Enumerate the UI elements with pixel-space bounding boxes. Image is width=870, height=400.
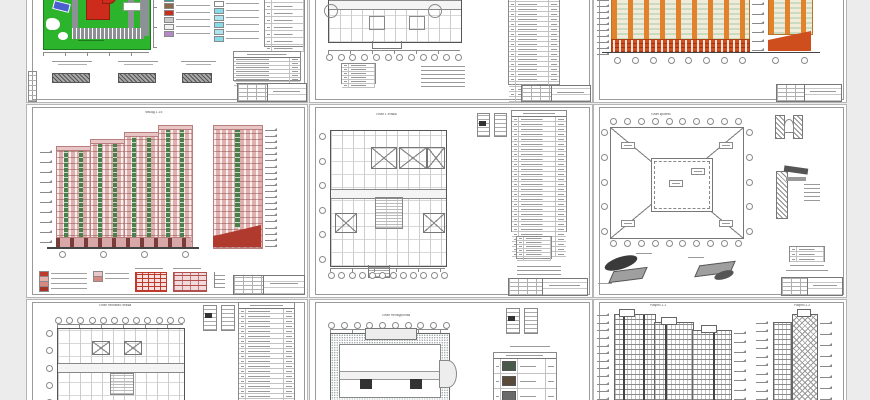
axis-bubbles-bottom <box>328 272 448 279</box>
elevation-mark <box>734 387 746 391</box>
cell-text <box>516 7 549 11</box>
unit-column <box>494 113 507 137</box>
section-tower-2 <box>654 322 694 400</box>
axis-bubble <box>735 118 742 125</box>
cell-value <box>549 72 559 76</box>
note-line <box>421 74 465 75</box>
sheet-floor-plan-main: План 1 этажа <box>309 104 593 298</box>
cell-value <box>284 344 294 348</box>
room-box <box>369 16 385 30</box>
cell-number <box>517 249 524 252</box>
elevation-mark <box>265 164 277 168</box>
cell-value <box>556 202 566 206</box>
sanitary-units-detail <box>477 113 507 137</box>
axis-bubble <box>77 317 84 324</box>
elevation-mark <box>265 145 277 149</box>
axis-bubble <box>420 54 427 61</box>
elevation-marks-right-2 <box>820 320 832 400</box>
cell-number <box>509 17 516 21</box>
cell-number <box>265 38 272 44</box>
cell-text <box>516 12 549 16</box>
cell-text <box>246 309 284 313</box>
cell-text <box>519 132 556 136</box>
elevation-mark <box>734 368 746 372</box>
cell-value <box>556 132 566 136</box>
cell-value <box>549 0 559 1</box>
title-block <box>776 84 842 102</box>
axis-bubble <box>319 133 326 140</box>
elevation-mark <box>597 45 609 49</box>
cell-number <box>265 0 272 2</box>
elevation-mark <box>597 15 609 19</box>
dark-room <box>410 379 422 389</box>
cell-number <box>512 222 519 226</box>
cell-text <box>524 245 551 248</box>
cell-value <box>546 389 556 400</box>
cell-value <box>549 17 559 21</box>
elevation-mark <box>597 312 609 316</box>
cell-number <box>509 47 516 51</box>
cell-swatch-holder <box>501 374 518 388</box>
elevation-mark <box>40 169 52 173</box>
elevation-mark <box>597 373 609 377</box>
eaves-section-detail <box>776 157 820 217</box>
axis-bubble <box>614 57 621 64</box>
axis-bubbles-bottom <box>326 54 462 61</box>
cell-value <box>556 172 566 176</box>
cell-text <box>516 52 549 56</box>
road-profile-2 <box>112 61 170 89</box>
elevation-mark <box>265 237 277 241</box>
note-line <box>517 270 561 271</box>
cell-value <box>556 157 566 161</box>
elevation-mark <box>597 327 609 331</box>
axis-bubbles <box>59 251 189 258</box>
balcony-strip <box>132 137 136 238</box>
elevation-mark <box>265 212 277 216</box>
cell-number <box>509 0 516 1</box>
leader-line <box>636 253 652 254</box>
title-block <box>521 85 591 102</box>
elevation-mark <box>820 320 832 324</box>
elevation-mark <box>40 229 52 233</box>
cell-text <box>519 217 556 221</box>
elevation-mark <box>597 381 609 385</box>
cell-number <box>265 10 272 16</box>
cell-number <box>517 245 524 248</box>
cell-value <box>549 62 559 66</box>
drawing-title: План техподполья <box>382 314 410 317</box>
dark-room <box>360 379 372 389</box>
elevation-marks-mid <box>734 330 746 400</box>
axis-bubble <box>319 231 326 238</box>
legend-text-line <box>226 3 259 4</box>
title-block-grid <box>238 84 268 101</box>
cell-text <box>519 117 556 121</box>
axis-bubble <box>801 57 808 64</box>
axis-bubble <box>385 54 392 61</box>
axis-bubble <box>319 207 326 214</box>
axis-bubbles-top <box>55 317 185 324</box>
axis-bubble <box>328 272 335 279</box>
elevation-mark <box>40 179 52 183</box>
lintel-table <box>341 63 376 84</box>
cell-number <box>512 207 519 211</box>
elevation-mark <box>756 345 768 349</box>
note-line <box>421 86 465 87</box>
axis-bubble <box>443 54 450 61</box>
axis-bubble <box>772 57 779 64</box>
site-playground <box>123 2 141 11</box>
axis-bubble <box>178 317 185 324</box>
cell-number <box>239 324 246 328</box>
elevation-mark <box>597 365 609 369</box>
site-parking <box>72 28 144 39</box>
cell-number <box>239 309 246 313</box>
cell-value <box>284 324 294 328</box>
elevation-mark <box>734 349 746 353</box>
basement-plan-drawing <box>330 333 450 400</box>
cell-value <box>556 227 566 231</box>
cell-number <box>239 354 246 358</box>
legend-text-line <box>226 10 259 11</box>
leader-line <box>598 283 612 284</box>
cell-text <box>797 252 824 256</box>
title-block-name <box>268 84 306 101</box>
section-tower-3 <box>692 330 732 400</box>
cell-value <box>284 314 294 318</box>
drawing-title: План 1 этажа <box>376 113 397 116</box>
site-dimension-line <box>43 52 149 56</box>
cell-number <box>517 237 524 240</box>
balcony-strip <box>180 130 184 238</box>
cell-text <box>524 253 551 256</box>
elevation-mark <box>752 11 764 15</box>
legend-row <box>214 7 259 14</box>
elevation-mark <box>40 189 52 193</box>
legend-row <box>214 0 259 7</box>
cell-value <box>556 242 566 246</box>
ground-line-side <box>762 52 820 53</box>
cell-text <box>519 167 556 171</box>
legend-text-line <box>176 33 210 34</box>
elevation-mark <box>265 151 277 155</box>
shaft-core <box>371 147 397 169</box>
parapet-cap <box>91 140 125 144</box>
axis-bubble <box>373 54 380 61</box>
table-row <box>265 24 304 31</box>
elevation-mark <box>756 328 768 332</box>
table-row <box>265 38 304 45</box>
cell-value <box>556 222 566 226</box>
table-row <box>265 17 304 24</box>
cell-text <box>349 80 375 83</box>
main-facade-orange <box>611 0 750 41</box>
axis-bubble <box>396 54 403 61</box>
cell-number <box>512 217 519 221</box>
axis-bubble <box>632 57 639 64</box>
cell-text <box>272 0 304 2</box>
masonry-grid-detail <box>135 272 167 292</box>
sheet-elevations-color <box>593 0 847 103</box>
elevation-mark <box>265 194 277 198</box>
cell-number <box>512 142 519 146</box>
axis-bubble <box>46 382 53 389</box>
floor-plan-drawing <box>328 0 462 43</box>
cell-value <box>284 374 294 378</box>
unit-dark-cell <box>479 121 486 126</box>
cell-value <box>284 339 294 343</box>
cell-number <box>509 92 516 96</box>
sanitary-units-detail <box>203 305 235 331</box>
axis-bubble <box>693 118 700 125</box>
cell-text <box>272 17 304 23</box>
sheet-basement-plan: План техподполья <box>309 299 593 400</box>
cell-text <box>349 76 375 79</box>
cell-text <box>516 57 549 61</box>
cell-value <box>556 122 566 126</box>
axis-bubble <box>739 57 746 64</box>
table-row <box>790 257 824 262</box>
cell-value <box>284 309 294 313</box>
cell-value <box>556 192 566 196</box>
room-schedule-table <box>508 0 560 85</box>
cell-number <box>512 122 519 126</box>
unit-column <box>506 308 520 334</box>
detail-circle-right <box>428 4 442 18</box>
leader-notes <box>804 181 820 204</box>
cell-number <box>509 12 516 16</box>
elevation-mark <box>756 320 768 324</box>
cell-number <box>509 22 516 26</box>
cell-text <box>516 77 549 81</box>
elevation-mark <box>756 388 768 392</box>
cell-text <box>349 84 375 87</box>
axis-bubble <box>410 272 417 279</box>
detail-caption <box>173 268 201 269</box>
title-block-grid <box>782 278 808 295</box>
road-profile-3 <box>176 61 226 89</box>
cell-number <box>512 202 519 206</box>
elevation-mark <box>756 354 768 358</box>
tep-rows <box>234 58 300 86</box>
cell-number <box>512 182 519 186</box>
legend-text-line <box>226 31 259 32</box>
title-block-name <box>808 278 842 295</box>
axis-bubble <box>610 240 617 247</box>
cell-text <box>516 27 549 31</box>
cell-text <box>519 147 556 151</box>
elevation-mark <box>40 219 52 223</box>
note-line <box>790 265 824 266</box>
axis-bubbles-left <box>601 129 608 235</box>
cell-value <box>549 2 559 6</box>
cell-text <box>516 62 549 66</box>
roof-machine-room <box>661 317 677 325</box>
room-box <box>409 16 425 30</box>
axis-bubble <box>746 228 753 235</box>
roof-plan-body <box>610 127 744 239</box>
sheet-floor-plan-1: План 1-го этажа <box>309 0 593 103</box>
axis-bubble <box>721 57 728 64</box>
cell-text <box>519 157 556 161</box>
axis-bubbles <box>614 57 746 64</box>
facade-legend-1 <box>39 271 87 291</box>
elevation-mark <box>265 157 277 161</box>
stairwell <box>375 197 403 229</box>
cell-value <box>290 74 300 77</box>
axis-bubbles-right <box>746 129 753 235</box>
legend-swatch <box>164 3 174 9</box>
cell-number <box>509 42 516 46</box>
site-legend <box>164 0 210 37</box>
cell-number <box>509 67 516 71</box>
cell-number <box>509 72 516 76</box>
cell-value <box>556 232 566 236</box>
legend-row <box>164 9 210 16</box>
axis-bubble <box>55 317 62 324</box>
axis-bubble <box>601 228 608 235</box>
cell-value <box>284 389 294 393</box>
axis-bubble <box>338 272 345 279</box>
axis-bubble <box>707 240 714 247</box>
table-row <box>265 10 304 17</box>
finish-rows <box>494 359 556 400</box>
axis-bubble <box>650 57 657 64</box>
cell-value <box>556 137 566 141</box>
cell-value <box>546 359 556 373</box>
cell-text <box>234 66 290 69</box>
notes-block <box>517 263 561 278</box>
cell-value <box>556 212 566 216</box>
cell-number <box>494 389 501 400</box>
site-dimension-line-v <box>153 0 157 48</box>
cell-text <box>518 359 546 373</box>
cell-number <box>512 197 519 201</box>
axis-bubble <box>685 57 692 64</box>
elevation-marks-mid <box>752 0 764 51</box>
legend-row <box>164 2 210 9</box>
axis-bubble <box>441 272 448 279</box>
detail-caption <box>135 268 163 269</box>
axis-bubbles-left <box>46 330 53 400</box>
cell-text <box>519 182 556 186</box>
elevation-mark <box>597 358 609 362</box>
cell-text <box>524 237 551 240</box>
title-block-grid <box>509 279 543 295</box>
axis-bubble <box>601 129 608 136</box>
cell-text <box>518 389 546 400</box>
elevation-mark <box>597 21 609 25</box>
legend-text-line <box>176 5 210 6</box>
elevation-mark <box>265 127 277 131</box>
elevation-mark <box>265 188 277 192</box>
entrance-porch <box>372 41 402 49</box>
note-line <box>517 274 561 275</box>
elevation-mark <box>734 377 746 381</box>
balcony-strip <box>147 137 151 238</box>
axis-bubble <box>122 317 129 324</box>
elevation-mark <box>752 38 764 42</box>
cell-value <box>556 182 566 186</box>
cell-number <box>509 27 516 31</box>
axis-bubble <box>610 118 617 125</box>
legend-text-line <box>226 24 259 25</box>
cell-text <box>516 47 549 51</box>
legend-text-line <box>105 273 129 274</box>
cell-value <box>290 70 300 73</box>
shaft-core <box>92 341 110 355</box>
cell-text <box>797 257 824 261</box>
legend-swatch <box>214 15 224 21</box>
unit-column <box>221 305 235 331</box>
axis-bubble <box>369 272 376 279</box>
finishes-table <box>493 352 557 400</box>
cell-text <box>272 3 304 9</box>
elevation-marks-left <box>40 149 52 243</box>
top-protrusion <box>365 328 417 340</box>
lintel-table <box>516 236 552 259</box>
elevation-mark <box>756 379 768 383</box>
site-path-blob-1 <box>46 18 60 30</box>
cell-text <box>519 207 556 211</box>
cell-number <box>517 241 524 244</box>
cell-text <box>234 70 290 73</box>
cell-number <box>265 31 272 37</box>
table-row <box>517 257 551 261</box>
drawing-title: План типового этажа <box>99 304 131 307</box>
axis-bubble <box>638 240 645 247</box>
elevation-mark <box>752 20 764 24</box>
cell-text <box>518 374 546 388</box>
drawing-title: Фасад 1-15 <box>145 111 162 114</box>
axis-bubble <box>721 118 728 125</box>
legend-swatch <box>164 17 174 23</box>
floor-plan-drawing <box>330 130 447 267</box>
drawing-title: План кровли <box>651 113 670 116</box>
cell-number <box>512 147 519 151</box>
axis-bubble <box>693 240 700 247</box>
cell-text <box>234 78 290 81</box>
parapet-wall <box>793 115 803 139</box>
cell-text <box>349 72 375 75</box>
elevation-mark <box>265 231 277 235</box>
side-facade-orange <box>768 0 813 35</box>
cell-text <box>246 389 284 393</box>
cell-text <box>519 197 556 201</box>
cell-text <box>234 58 290 61</box>
cell-value <box>556 217 566 221</box>
cell-number <box>265 17 272 23</box>
cell-number <box>790 257 797 261</box>
axis-bubble <box>666 240 673 247</box>
cell-number <box>239 374 246 378</box>
cell-value <box>556 162 566 166</box>
cell-number <box>342 76 349 79</box>
drawing-title-section-2: Разрез 2-2 <box>794 304 810 307</box>
axis-bubble <box>420 272 427 279</box>
cell-text <box>519 137 556 141</box>
cell-number <box>239 364 246 368</box>
axis-bubble <box>638 118 645 125</box>
cell-number <box>239 319 246 323</box>
cell-value <box>284 394 294 398</box>
legend-text-line <box>51 288 87 289</box>
finish-swatch <box>502 376 516 386</box>
cell-text <box>246 379 284 383</box>
axis-bubble <box>430 322 437 329</box>
cell-number <box>239 359 246 363</box>
